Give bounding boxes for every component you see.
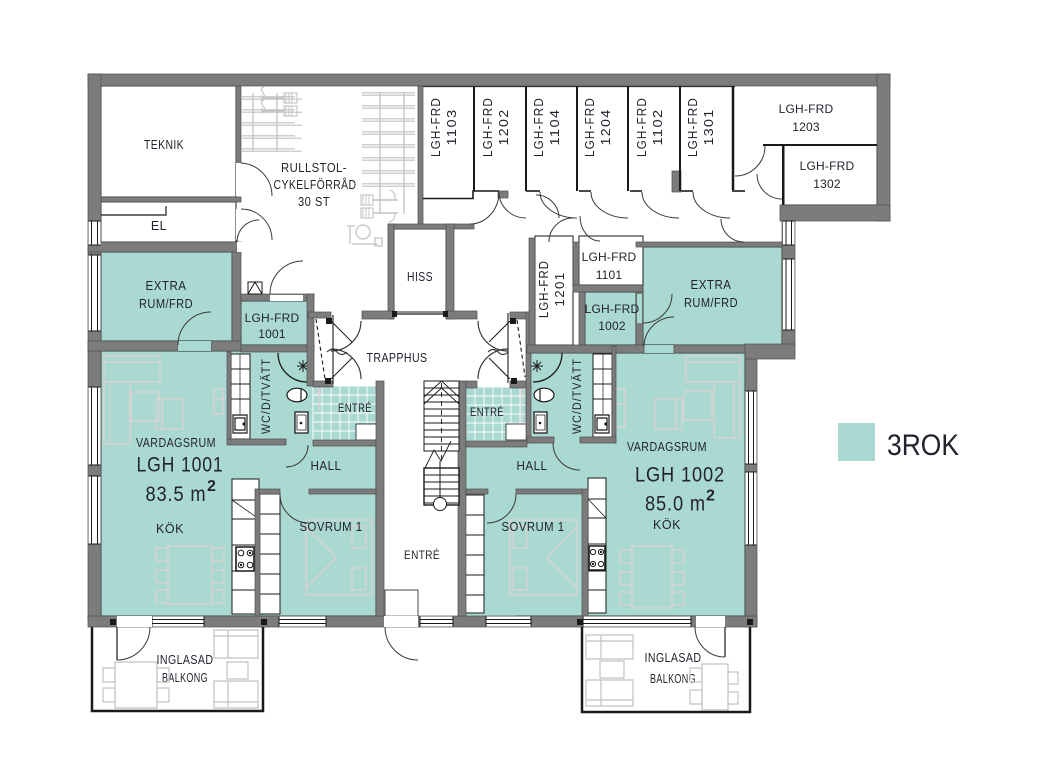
svg-text:LGH-FRD: LGH-FRD [481,97,495,157]
svg-text:LGH-FRD: LGH-FRD [583,97,597,157]
svg-text:VARDAGSRUM: VARDAGSRUM [136,436,216,450]
svg-text:LGH-FRD: LGH-FRD [582,250,637,264]
svg-text:KÖK: KÖK [653,518,681,532]
svg-text:1104: 1104 [548,109,562,146]
svg-text:LGH-FRD: LGH-FRD [585,302,640,316]
svg-text:HALL: HALL [311,459,342,473]
svg-text:30 ST: 30 ST [298,195,330,209]
svg-text:WC/D/TVÄTT: WC/D/TVÄTT [261,358,273,434]
svg-text:1301: 1301 [702,109,716,146]
svg-text:1001: 1001 [258,327,286,341]
svg-text:1201: 1201 [553,272,567,307]
svg-text:LGH-FRD: LGH-FRD [532,97,546,157]
svg-text:2: 2 [207,478,216,495]
svg-text:3ROK: 3ROK [887,429,959,462]
svg-text:LGH-FRD: LGH-FRD [635,97,649,157]
svg-text:1302: 1302 [813,177,841,191]
svg-text:LGH-FRD: LGH-FRD [800,159,855,173]
svg-text:ENTRÉ: ENTRÉ [404,547,440,562]
svg-text:INGLASAD: INGLASAD [645,651,702,665]
svg-text:LGH-FRD: LGH-FRD [779,102,834,116]
svg-text:RUM/FRD: RUM/FRD [139,297,193,311]
svg-text:ENTRÉ: ENTRÉ [338,400,372,415]
svg-text:1103: 1103 [445,109,459,146]
svg-text:RULLSTOL-: RULLSTOL- [281,161,347,175]
svg-text:LGH 1002: LGH 1002 [635,463,725,487]
svg-text:KÖK: KÖK [156,522,184,536]
svg-text:EL: EL [151,219,167,233]
svg-text:SOVRUM 1: SOVRUM 1 [300,520,363,534]
svg-text:WC/D/TVÄTT: WC/D/TVÄTT [572,358,584,434]
svg-text:LGH-FRD: LGH-FRD [686,97,700,157]
svg-text:CYKELFÖRRÅD: CYKELFÖRRÅD [274,177,357,192]
svg-text:LGH-FRD: LGH-FRD [429,97,443,157]
svg-text:TRAPPHUS: TRAPPHUS [367,351,428,365]
svg-text:TEKNIK: TEKNIK [144,138,184,152]
svg-text:1002: 1002 [598,319,626,333]
svg-text:ENTRÉ: ENTRÉ [470,404,504,419]
svg-text:EXTRA: EXTRA [146,279,187,293]
svg-text:1102: 1102 [651,109,665,146]
svg-text:2: 2 [706,488,715,505]
svg-text:LGH 1001: LGH 1001 [137,453,224,477]
svg-text:HISS: HISS [407,270,433,284]
svg-text:LGH-FRD: LGH-FRD [537,260,551,318]
svg-text:LGH-FRD: LGH-FRD [245,311,300,325]
svg-text:1101: 1101 [596,268,623,282]
svg-text:RUM/FRD: RUM/FRD [684,296,738,310]
svg-text:BALKONG: BALKONG [650,672,696,686]
svg-text:SOVRUM 1: SOVRUM 1 [502,520,565,534]
svg-text:1203: 1203 [792,120,820,134]
svg-text:85.0 m: 85.0 m [645,493,706,516]
svg-text:INGLASAD: INGLASAD [157,653,214,667]
svg-text:EXTRA: EXTRA [691,278,732,292]
svg-text:83.5 m: 83.5 m [146,483,207,506]
svg-text:1204: 1204 [599,109,613,146]
svg-text:HALL: HALL [517,459,548,473]
svg-text:VARDAGSRUM: VARDAGSRUM [627,440,707,454]
svg-text:1202: 1202 [497,109,511,146]
